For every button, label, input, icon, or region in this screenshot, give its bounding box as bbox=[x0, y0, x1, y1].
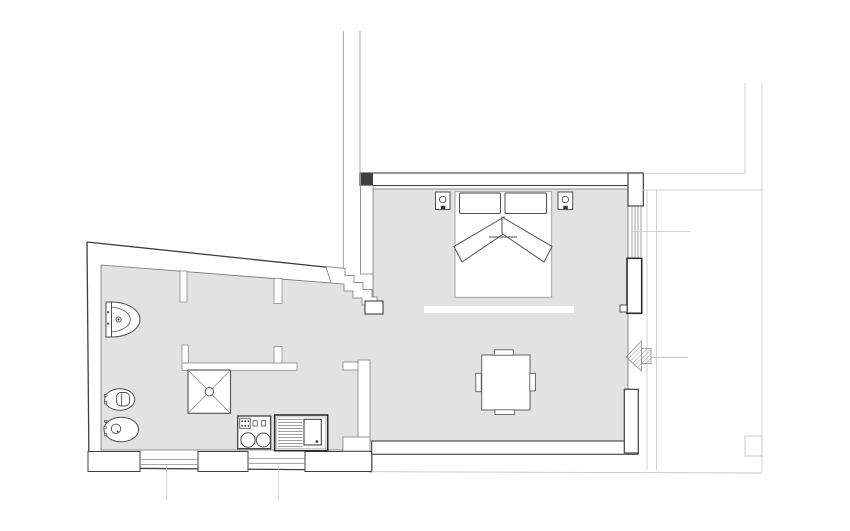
switch-right bbox=[563, 206, 568, 209]
furniture-kitchen bbox=[238, 415, 328, 451]
bath-partition-return-right bbox=[274, 347, 282, 364]
stove-knob-6 bbox=[248, 425, 250, 427]
furniture-dining bbox=[476, 350, 536, 415]
chair-south bbox=[495, 410, 514, 415]
stove-switch-1 bbox=[253, 421, 257, 426]
switch-left bbox=[441, 206, 446, 209]
bidet-hinge-2 bbox=[104, 427, 106, 429]
neighbor-box bbox=[745, 436, 762, 456]
sink-faucet-dot bbox=[118, 319, 120, 321]
lamp-left bbox=[440, 196, 446, 202]
bedroom-north-wall bbox=[360, 173, 643, 186]
bath-partition-stub-1 bbox=[180, 271, 187, 302]
bedside-rug bbox=[424, 306, 574, 313]
stove-knob-1 bbox=[241, 420, 243, 422]
stove-knob-4 bbox=[241, 425, 243, 427]
floor-plan-page bbox=[0, 0, 850, 531]
bidet-drain bbox=[111, 424, 120, 433]
bidet-bowl bbox=[104, 417, 139, 442]
kitchen-step-wall bbox=[343, 437, 370, 451]
bath-partition-return-left bbox=[182, 345, 188, 363]
bath-south-partition bbox=[182, 363, 297, 370]
bidet-dot bbox=[117, 431, 119, 433]
stove-burner-right bbox=[256, 433, 270, 447]
kitchen-basin-drain-dot bbox=[316, 440, 319, 443]
pillow-right bbox=[505, 193, 547, 214]
stove-knob-panel bbox=[240, 418, 251, 428]
south-wall-pier-1 bbox=[88, 452, 140, 472]
toilet-hinge-1 bbox=[104, 394, 107, 396]
east-wall-corner bbox=[628, 173, 643, 206]
chair-east bbox=[530, 373, 536, 391]
east-wall-pier bbox=[627, 258, 642, 313]
lamp-right bbox=[562, 196, 568, 202]
sink-backplate bbox=[106, 302, 112, 337]
east-wall-lower bbox=[624, 389, 638, 453]
stove-burner-left bbox=[241, 433, 255, 447]
pillow-left bbox=[460, 193, 501, 214]
kitchen-divider-notch bbox=[343, 362, 358, 370]
sidewalk-line bbox=[372, 472, 762, 473]
bedroom-north-wall-cap bbox=[361, 174, 373, 186]
sink-tap-mark-2 bbox=[107, 323, 109, 325]
toilet-tank bbox=[117, 393, 130, 407]
stove-switch-2 bbox=[261, 421, 265, 426]
living-south-wall bbox=[372, 441, 638, 454]
shower-drain bbox=[205, 388, 213, 396]
kitchen-divider-wall bbox=[358, 360, 370, 437]
entry-arrow-tail bbox=[642, 348, 652, 363]
toilet-hinge-2 bbox=[104, 402, 107, 404]
dining-table bbox=[482, 355, 530, 410]
hall-door-jamb bbox=[365, 301, 383, 314]
chair-west bbox=[476, 373, 481, 391]
kitchen-basin bbox=[304, 419, 321, 445]
stove-knob-3 bbox=[248, 420, 250, 422]
south-wall-pier-3 bbox=[305, 452, 372, 472]
stove-knob-5 bbox=[244, 425, 246, 427]
floor-plan-canvas bbox=[0, 0, 850, 531]
south-wall-pier-2 bbox=[198, 452, 248, 472]
stove-knob-2 bbox=[244, 420, 246, 422]
bidet-hinge-3 bbox=[105, 434, 107, 436]
east-wall-jamb bbox=[620, 305, 627, 312]
bidet-hinge-1 bbox=[105, 420, 107, 422]
chair-north bbox=[494, 350, 513, 355]
bath-partition-stub-2 bbox=[274, 279, 282, 304]
bedroom-west-wall bbox=[361, 186, 374, 275]
sink-tap-mark-1 bbox=[107, 311, 109, 313]
